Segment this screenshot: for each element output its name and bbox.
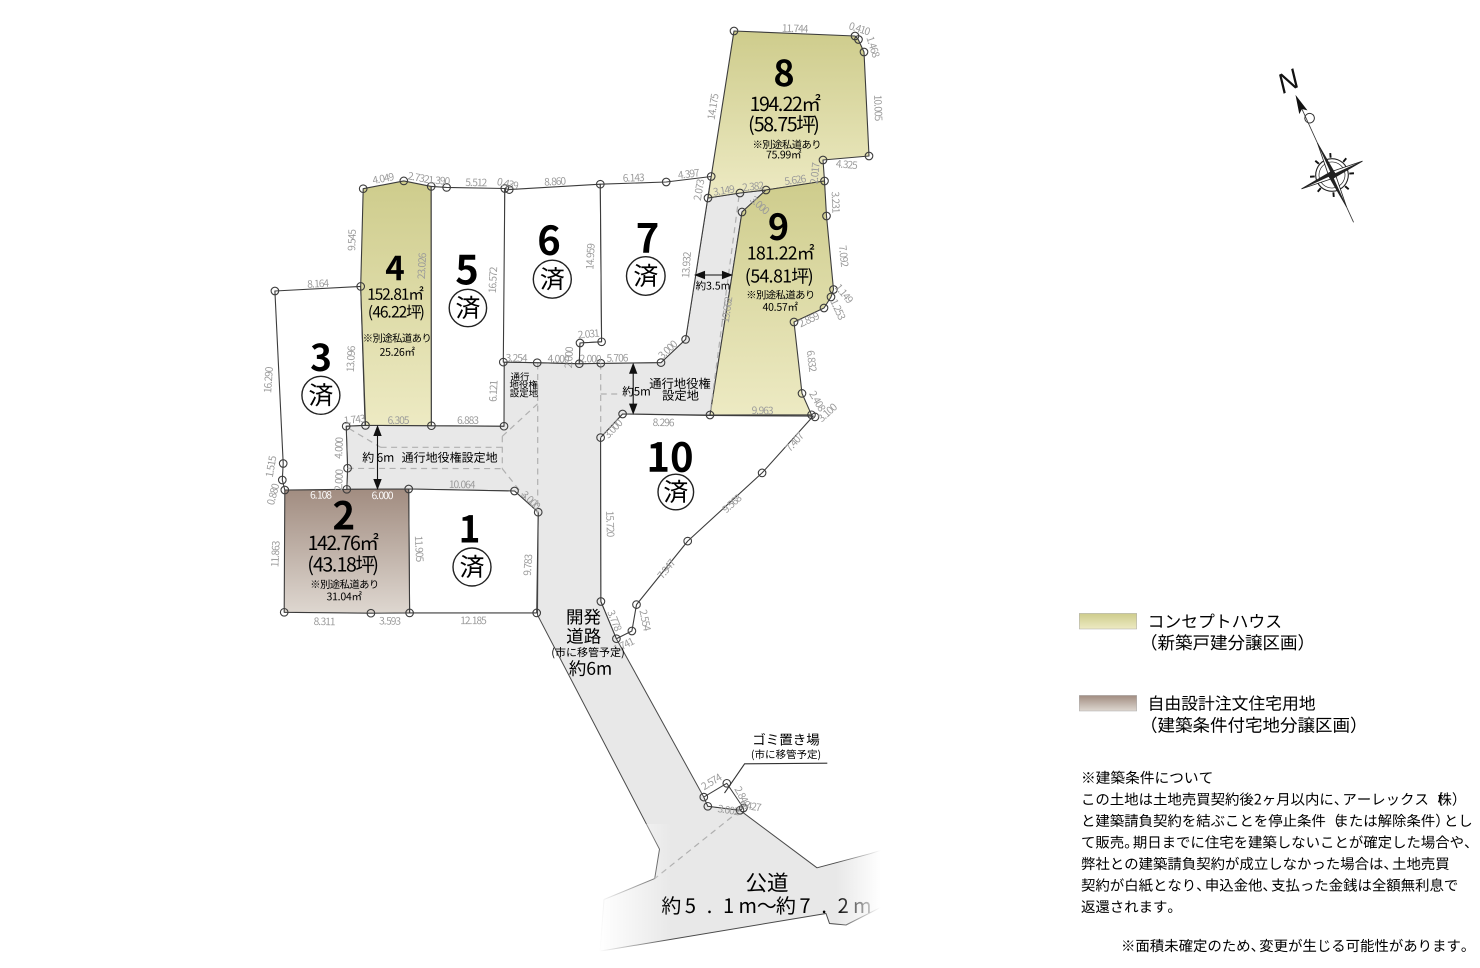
svg-text:N: N: [1273, 63, 1305, 100]
